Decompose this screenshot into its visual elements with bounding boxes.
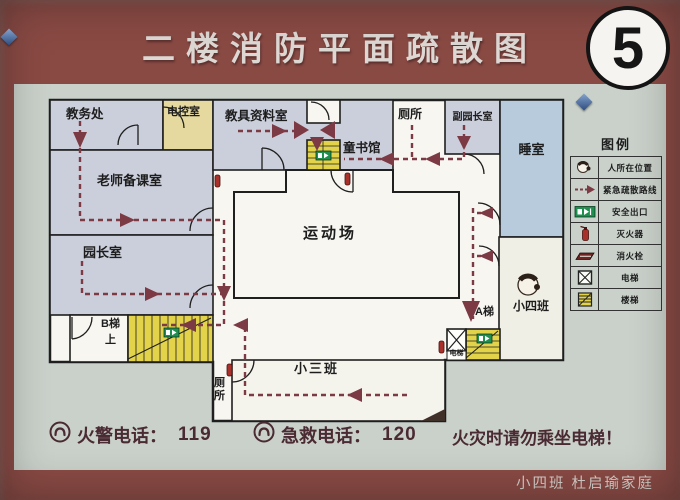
ems-phone: 急救电话： 120 [252,420,417,449]
fire-phone-number: 119 [178,424,212,446]
room-label-cesuo-top: 厕所 [398,108,422,122]
room-label-cesuo-bottom: 厕所 [214,377,227,402]
label-a-stairs: A梯 [475,306,494,319]
room-label-xiaosiban: 小四班 [499,300,563,314]
label-b-stairs-direction: 上 [105,334,116,347]
room-label-yuanzhangshi: 园长室 [83,246,122,261]
label-elevator: 电梯 [444,350,469,358]
legend-row: 紧急疏散路线 [571,179,661,201]
extinguisher-icon [571,223,599,244]
legend-label: 安全出口 [599,201,661,222]
legend: 图例 人所在位置 紧急疏散路线 安全出口 [570,134,662,311]
fire-phone-label: 火警电话： [77,422,167,448]
elevator-warning-text: 火灾时请勿乘坐电梯！ [452,424,622,449]
room-label-laoshibeikeshi: 老师备课室 [97,174,162,189]
legend-label: 灭火器 [599,223,661,244]
route-icon [571,179,599,200]
legend-label: 消火栓 [599,245,661,266]
room-laoshibeikeshi [50,150,213,235]
room-label-fuyuanzhangshi: 副园长室 [444,112,501,124]
floor-number-badge: 5 [586,6,670,90]
room-label-tongshuguan: 童书馆 [343,141,381,155]
room-label-diankongshi: 电控室 [167,106,200,119]
room-label-yundongchang: 运动场 [303,225,357,242]
legend-label: 紧急疏散路线 [599,179,661,200]
stairs-b [128,315,213,362]
room-fuyuanzhangshi [445,100,500,154]
legend-label: 电梯 [599,267,661,288]
door-alcove [307,100,340,123]
exit-icon [571,201,599,222]
room-label-xiaosanban: 小三班 [294,362,339,377]
room-label-jiaowuchu: 教务处 [66,107,104,121]
label-b-stairs: B梯 [101,318,120,331]
phone-icon [48,420,72,449]
fire-phone: 火警电话： 119 [48,420,212,449]
room-yuanzhangshi [50,235,213,315]
signature-text: 小四班 杜启瑜家庭 [516,472,654,493]
legend-row: 人所在位置 [571,157,661,179]
hydrant-icon [571,245,599,266]
phone-icon [252,420,276,449]
elevator-icon [571,267,599,288]
floor-plan: 教务处 电控室 教具资料室 厕所 副园长室 睡室 老师备课室 童书馆 运动场 园… [40,95,565,425]
stairs-icon [571,289,599,310]
room-shuishi [500,100,563,237]
legend-label: 人所在位置 [599,157,661,178]
ems-phone-number: 120 [382,424,417,446]
poster-title: 二楼消防平面疏散图 [0,22,680,70]
person-icon [571,157,599,178]
legend-row: 灭火器 [571,223,661,245]
evacuation-poster: 二楼消防平面疏散图 5 [0,0,680,500]
legend-row: 电梯 [571,267,661,289]
legend-table: 人所在位置 紧急疏散路线 安全出口 灭火器 [570,156,662,311]
legend-row: 消火栓 [571,245,661,267]
room-label-jiaojuziliaoshi: 教具资料室 [225,109,288,123]
legend-row: 楼梯 [571,289,661,310]
legend-label: 楼梯 [599,289,661,310]
ems-phone-label: 急救电话： [281,422,371,448]
legend-row: 安全出口 [571,201,661,223]
legend-title: 图例 [570,134,662,153]
room-label-shuishi: 睡室 [500,143,563,158]
